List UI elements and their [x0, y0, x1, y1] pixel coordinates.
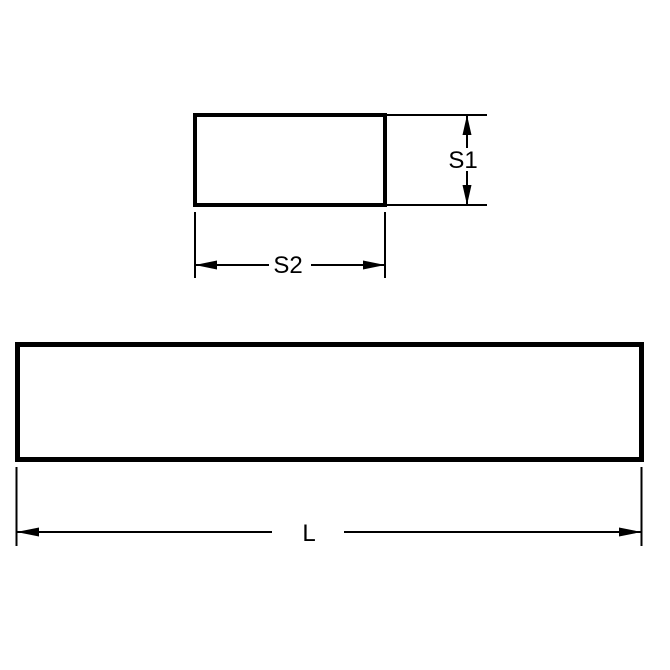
length-label: L: [302, 520, 315, 547]
length-dimension: L: [17, 467, 642, 547]
s1-dimension: S1: [387, 115, 487, 205]
drawing-canvas: S1 S2 L: [0, 0, 670, 670]
s1-arrow-up-icon: [463, 115, 472, 135]
length-arrow-right-icon: [619, 528, 642, 537]
s1-arrow-down-icon: [463, 185, 472, 205]
cross-section-rect: [195, 115, 385, 205]
length-arrow-left-icon: [17, 528, 40, 537]
s2-dimension: S2: [195, 212, 385, 279]
s2-arrow-left-icon: [195, 261, 217, 270]
s2-label: S2: [273, 252, 302, 279]
s2-arrow-right-icon: [363, 261, 385, 270]
keystock-technical-drawing: S1 S2 L: [0, 0, 670, 670]
s1-label: S1: [448, 147, 477, 174]
side-view-rect: [18, 345, 642, 460]
